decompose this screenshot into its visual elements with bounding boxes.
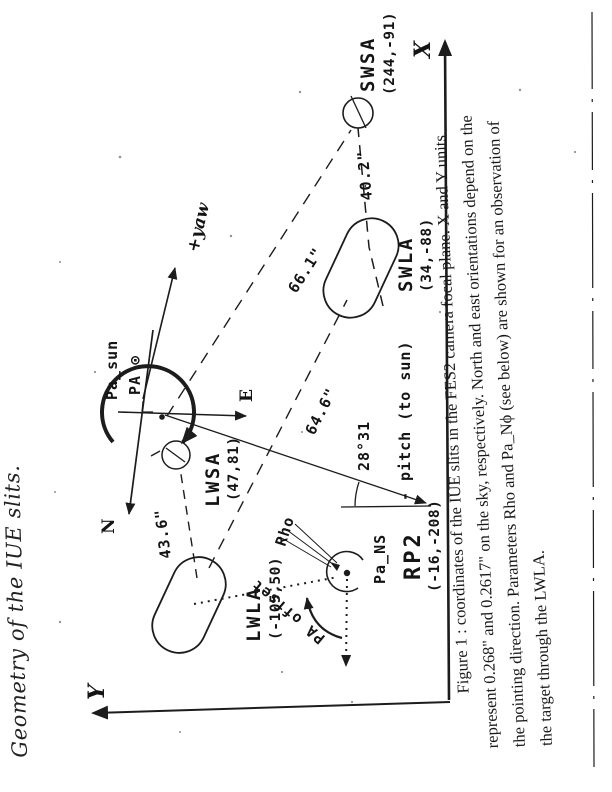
pitch-label: - pitch (to sun)	[396, 341, 414, 502]
pitch-angle-arc	[355, 482, 359, 506]
lwla-aperture-outline	[143, 548, 234, 661]
scanned-page: Geometry of the IUE slits. X Y SWSA (24	[0, 0, 612, 792]
yaw-arrow	[143, 268, 175, 399]
rho-pointer-arrowhead	[330, 562, 340, 571]
center-swsa-dashed-line	[167, 130, 351, 416]
distance-swla-lwla: 64.6"	[302, 385, 341, 438]
distance-swsa-swla: 40.2"	[354, 150, 376, 202]
yaw-label: +yaw	[183, 200, 214, 254]
pointing-center-dot	[159, 414, 165, 420]
lwsa-slit-mark	[166, 448, 185, 462]
lwsa-label: LWSA	[202, 451, 224, 507]
east-line	[118, 412, 246, 416]
rp2-target-dot	[344, 570, 350, 576]
swla-label: SWLA	[395, 236, 417, 292]
east-label: E	[237, 389, 257, 402]
pa-ns-label: Pa_NS	[371, 534, 389, 584]
y-axis-line	[94, 702, 450, 713]
rp2-label: RP2	[401, 531, 426, 580]
rotated-figure-container: Geometry of the IUE slits. X Y SWSA (24	[0, 0, 612, 792]
y-axis-label: Y	[84, 682, 110, 700]
swsa-coords: (244,-91)	[382, 12, 398, 95]
swsa-label: SWSA	[357, 36, 379, 92]
north-label: N	[99, 518, 119, 534]
distance-lwsa-lwla: 43.6"	[151, 508, 175, 560]
swsa-slit-mark	[351, 96, 366, 128]
swsa-aperture-circle	[343, 98, 373, 128]
edge-dashdot-mark	[592, 12, 594, 767]
swla-aperture-outline	[315, 209, 408, 326]
pitch-angle-label: 28°31	[355, 421, 373, 471]
pa-sun-symbol-label: PA ⊙	[126, 355, 144, 395]
angle-reference-segment	[341, 506, 431, 507]
rho-label: Rho	[272, 514, 298, 548]
pa-sun-label: Pa_sun	[103, 340, 121, 400]
distance-center-swsa: 66.1"	[284, 244, 326, 296]
rp2-coords: (-16,-208)	[427, 500, 443, 592]
lwsa-coords: (47,81)	[226, 436, 242, 501]
lwsa-tick-mark	[151, 451, 160, 456]
